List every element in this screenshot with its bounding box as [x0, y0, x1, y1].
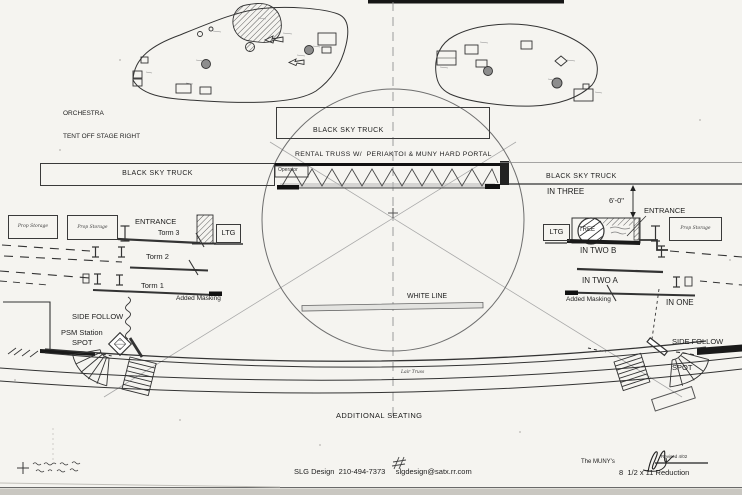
stairs-right-straight	[614, 353, 650, 390]
scan-edge-top	[368, 0, 564, 4]
prop-storage-1-label: Prop Storage	[18, 224, 48, 229]
torm2-bar	[130, 268, 208, 271]
black-sky-truck-center-box: BLACK SKY TRUCK	[276, 107, 490, 139]
in-two-b-bar	[577, 269, 663, 272]
orchestra-note: ORCHESTRA TENT OFF STAGE RIGHT	[63, 95, 140, 149]
footer-credit: SLG Design 210-494-7373 slgdesign@satx.r…	[294, 468, 472, 477]
side-follow-left-line2: SPOT	[72, 339, 123, 348]
ltg-left-label: LTG	[221, 229, 235, 238]
in-one-label: IN ONE	[666, 298, 694, 307]
torm2-label: Torm 2	[146, 253, 169, 262]
spiral-unit	[233, 3, 281, 51]
in-two-b-label: IN TWO B	[580, 246, 616, 255]
stage-right-scenery-platform	[436, 24, 598, 106]
side-follow-right-line1: SIDE FOLLOW	[672, 338, 723, 347]
added-masking-right-label: Added Masking	[566, 296, 611, 304]
prop-storage-box-right: Prop Storage	[669, 217, 722, 241]
psm-station-label: PSM Station	[61, 329, 103, 338]
ltg-box-right: LTG	[543, 224, 570, 241]
side-follow-spot-left-label: SIDE FOLLOW SPOT	[72, 295, 123, 357]
torm1-label: Torm 1	[141, 282, 164, 291]
black-sky-truck-center-label: BLACK SKY TRUCK	[313, 127, 384, 135]
entrance-right-label: ENTRANCE	[644, 207, 685, 216]
handwritten-note	[17, 462, 80, 474]
white-line-label: WHITE LINE	[407, 293, 447, 301]
lair-note-label: Lair Truss	[401, 370, 424, 375]
ltg-right-label: LTG	[549, 228, 563, 237]
prop-storage-right-label: Prop Storage	[680, 226, 710, 231]
ltg-box-left: LTG	[216, 224, 241, 243]
orchestra-note-line2: TENT OFF STAGE RIGHT	[63, 133, 140, 141]
show-owner: The MUNY's	[581, 459, 670, 466]
in-three-label: IN THREE	[547, 187, 584, 196]
black-sky-truck-right-label: BLACK SKY TRUCK	[546, 173, 617, 181]
operator-label: Operator	[278, 168, 298, 174]
dimension-label: 6'-0"	[609, 197, 624, 206]
right-blob-props	[437, 41, 593, 101]
left-blob-props	[133, 27, 336, 94]
left-blob-prop-tags	[146, 18, 320, 84]
dimension-arrow	[630, 185, 636, 218]
torm3-bar	[118, 239, 200, 243]
black-sky-truck-left-label: BLACK SKY TRUCK	[122, 170, 193, 178]
tilted-panel	[652, 387, 696, 411]
right-blob-prop-tags	[440, 42, 602, 93]
orchestra-note-line1: ORCHESTRA	[63, 110, 140, 118]
entrance-left-label: ENTRANCE	[135, 218, 176, 227]
rental-truss	[275, 161, 742, 190]
rental-truss-label: RENTAL TRUSS W/ PERIAKTOI & MUNY HARD PO…	[295, 151, 492, 159]
circle-center-mark	[388, 208, 398, 218]
title-block: The MUNY's CHORUS LINE 1997	[581, 421, 670, 495]
added-masking-left-label: Added Masking	[176, 295, 221, 303]
in-two-a-label: IN TWO A	[582, 276, 618, 285]
portal-right-post	[500, 161, 509, 185]
additional-seating-label: ADDITIONAL SEATING	[336, 412, 422, 421]
cable-squiggle-left	[126, 297, 131, 339]
black-sky-truck-left-box: BLACK SKY TRUCK	[40, 163, 275, 186]
ground-plan-sheet: BLACK SKY TRUCK BLACK SKY TRUCK BLACK SK…	[0, 0, 742, 495]
torm3-label: Torm 3	[158, 230, 179, 238]
reduction-label: 8 1/2 x 11 Reduction	[619, 469, 689, 478]
prop-storage-box-2: Prop Storage	[67, 215, 118, 240]
side-follow-right-line2: SPOT	[672, 364, 723, 373]
revised-label: Revised 4/02	[661, 454, 687, 459]
psm-platform	[3, 302, 50, 349]
tree-label: TREE	[579, 227, 595, 234]
side-follow-left-line1: SIDE FOLLOW	[72, 313, 123, 322]
prop-storage-box-1: Prop Storage	[8, 215, 58, 239]
side-follow-spot-right-label: SIDE FOLLOW SPOT	[672, 320, 723, 382]
prop-storage-2-label: Prop Storage	[77, 225, 107, 230]
white-line-bar	[302, 302, 483, 311]
